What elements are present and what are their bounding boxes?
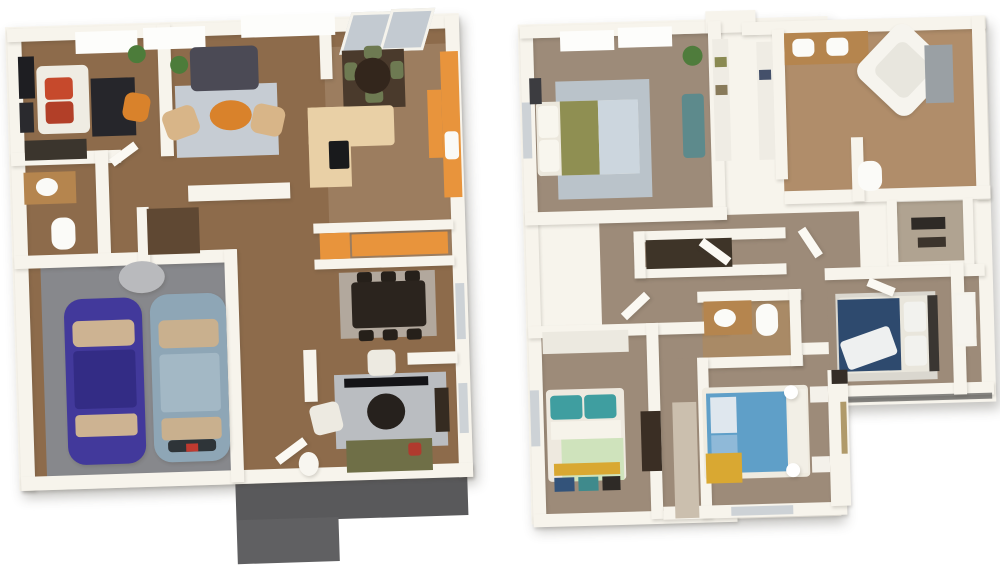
ac-grille (560, 30, 615, 51)
window-glass (731, 505, 793, 516)
media-console (640, 411, 662, 472)
closet-item (759, 70, 771, 80)
linen-item (918, 237, 946, 248)
bedroom4-headboard (927, 295, 939, 371)
bedroom3-pillow (710, 397, 737, 434)
bedroom4-pillow (904, 301, 927, 332)
wall-linen-left (887, 200, 899, 268)
master-pillow (539, 140, 560, 173)
window-glass (530, 390, 541, 446)
bedroom2-sheet (551, 420, 621, 440)
master-bath-sink (792, 38, 814, 57)
bedroom3-side-rail (788, 389, 808, 473)
bedroom2-runner (554, 462, 620, 476)
closet-wire-shelf (672, 402, 699, 519)
wall-hallbath-right (789, 289, 802, 366)
master-dresser (529, 78, 542, 104)
bedroom3-rug (706, 453, 743, 484)
master-bench (682, 94, 706, 159)
toilet (858, 161, 883, 192)
closet-item (715, 85, 727, 95)
master-pillow (538, 106, 559, 139)
floor-plan-stage (0, 0, 1000, 572)
bedroom2-mat (554, 477, 574, 492)
hall-bath-toilet (756, 304, 779, 337)
bedroom2-mat (602, 476, 620, 490)
wall-stair-left (633, 231, 645, 278)
door-wall-art (953, 292, 976, 347)
master-bed-runner (560, 100, 600, 175)
bedroom2-mat (578, 477, 598, 492)
tub-tile-panel (924, 45, 954, 104)
bedroom4-nightstand (831, 370, 847, 384)
nightstand (810, 386, 828, 402)
walkin-closet-shelf (756, 42, 775, 160)
master-bath-sink (826, 37, 848, 56)
bedroom2-pillow (550, 395, 583, 420)
window-glass (522, 102, 533, 158)
ac-grille (618, 26, 673, 47)
closet-item (715, 57, 727, 67)
second-floor-plan (0, 0, 1000, 572)
bedroom4-pillow (904, 335, 927, 366)
master-bed-quilt (598, 99, 640, 174)
wall-bedroom3-right (827, 370, 851, 507)
bedroom2-closet-clothes (542, 330, 629, 354)
linen-closet-floor (897, 200, 969, 266)
linen-item (911, 217, 945, 230)
bedroom2-pillow (584, 394, 617, 419)
wall-linen-right (963, 198, 975, 268)
nightstand (812, 456, 830, 472)
